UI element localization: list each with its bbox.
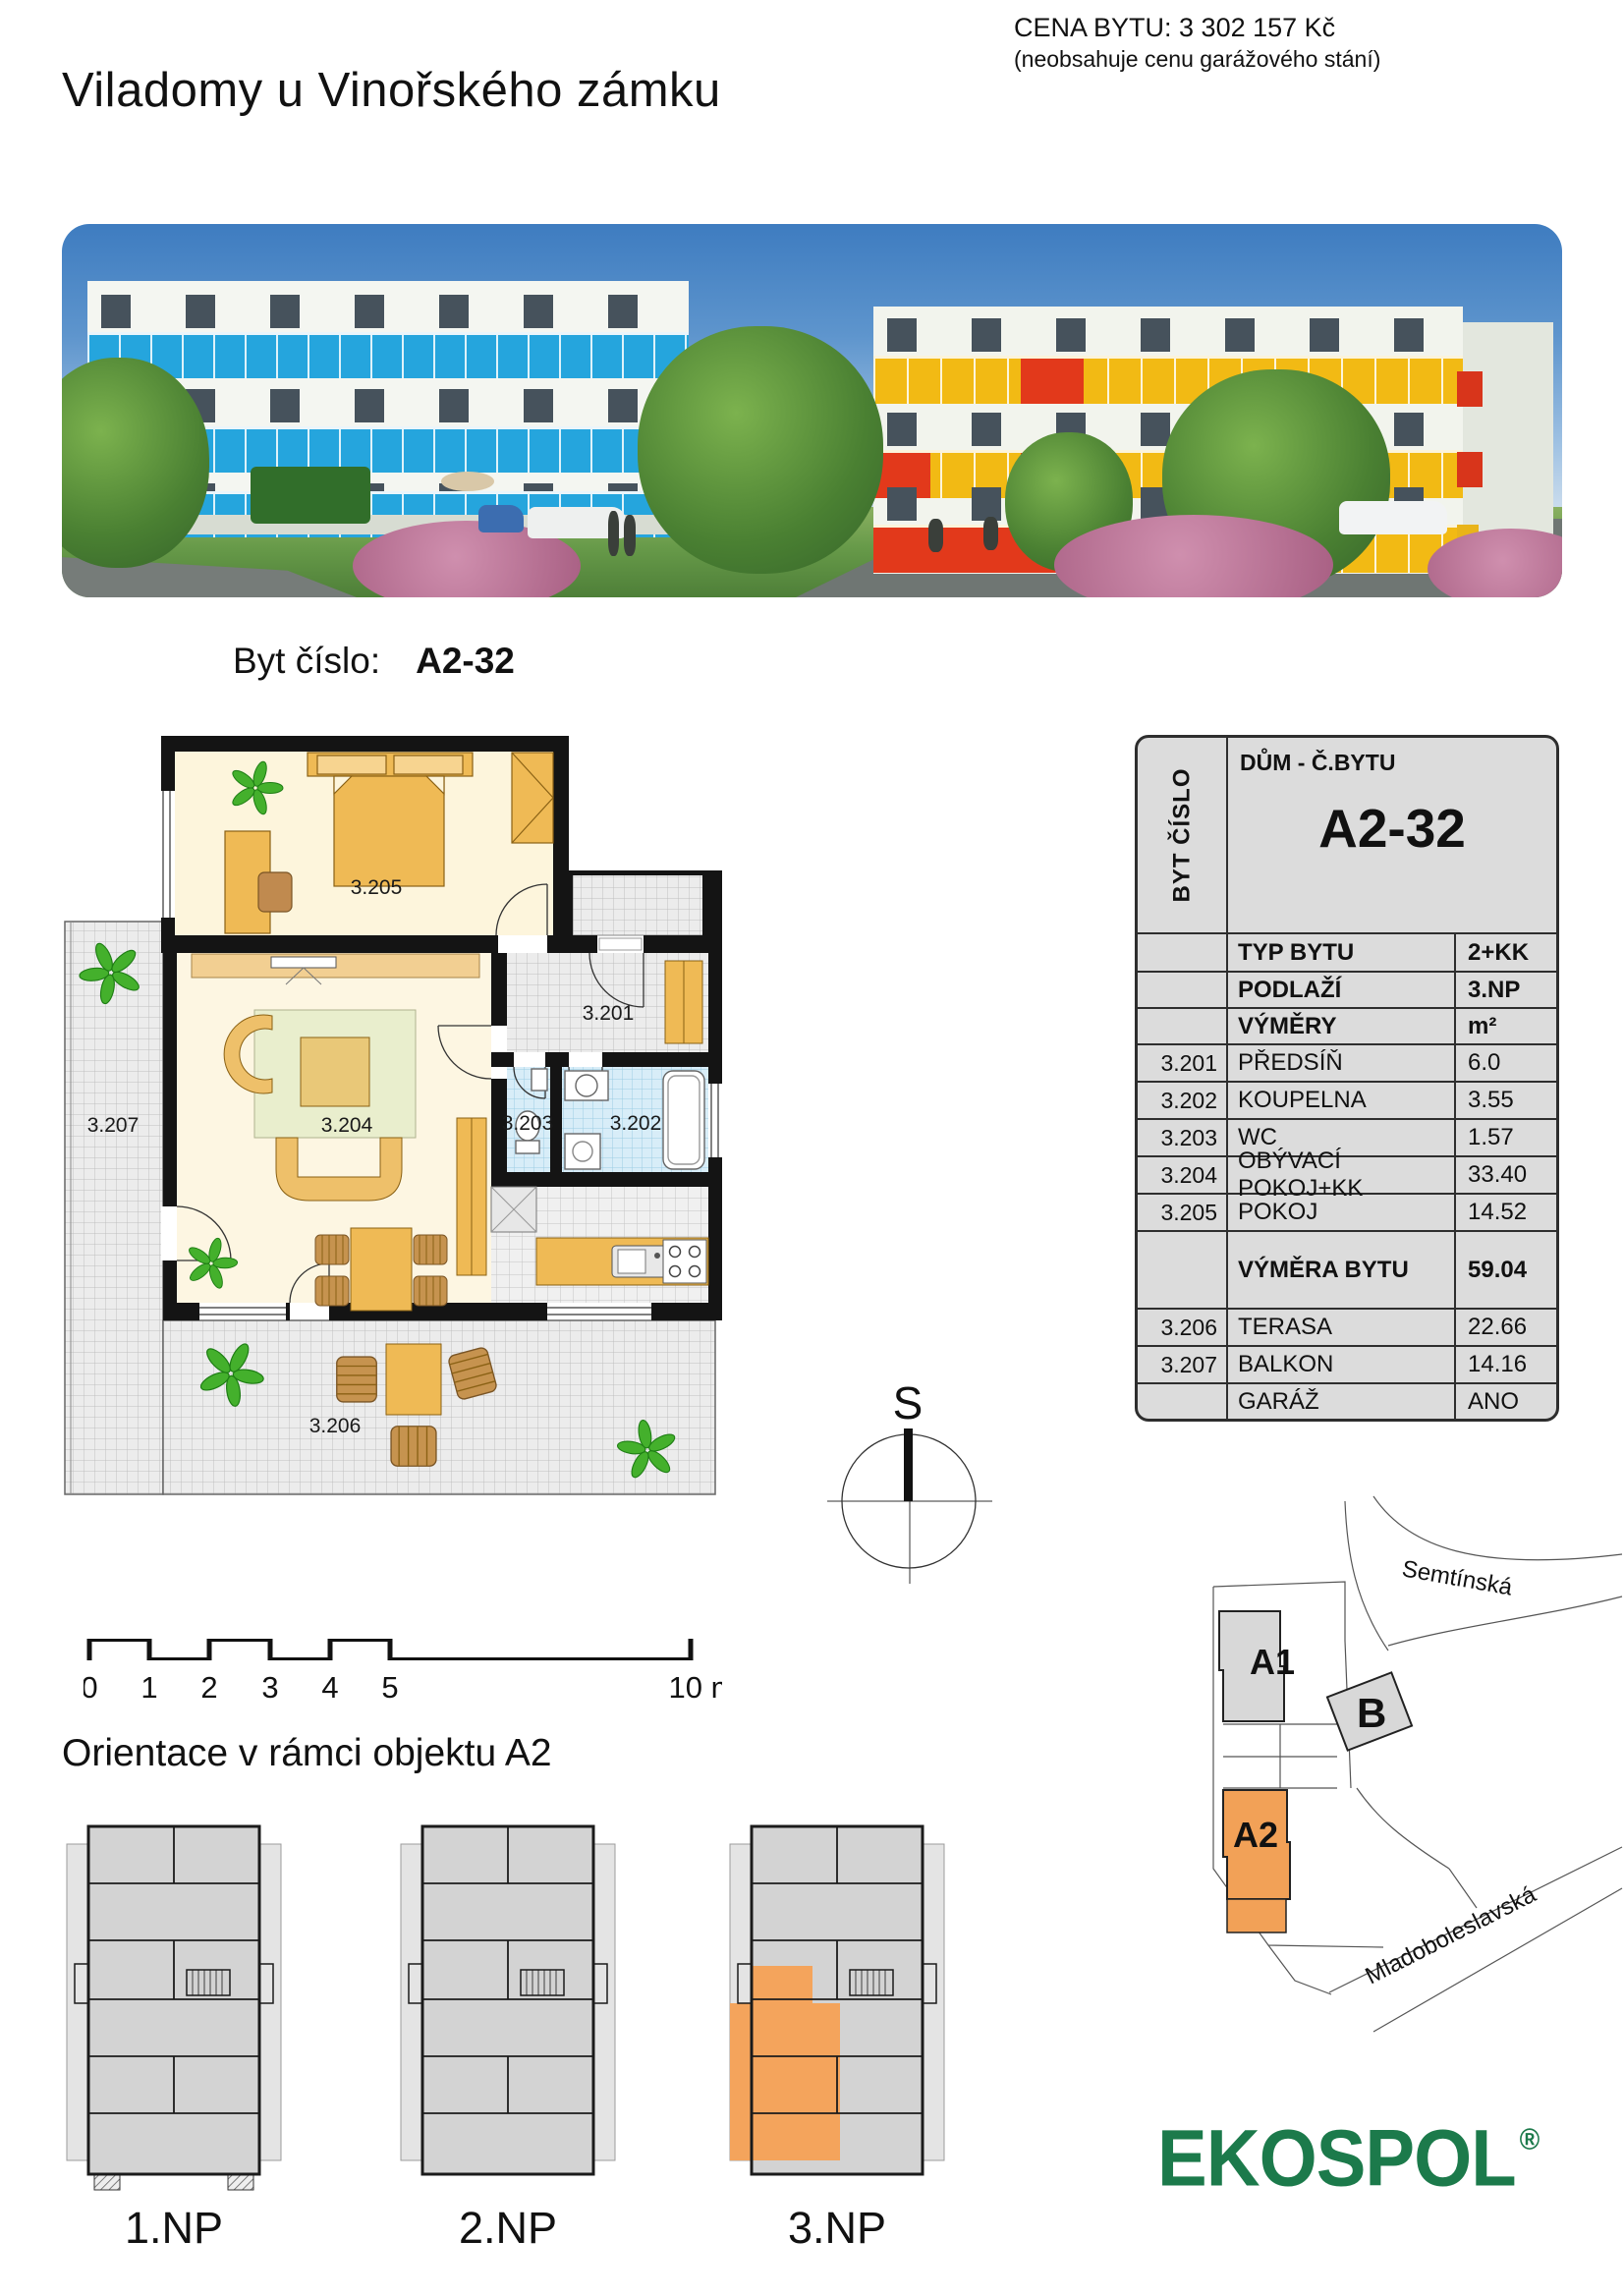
orientation-heading: Orientace v rámci objektu A2 <box>62 1732 552 1775</box>
cell-num <box>1138 1009 1228 1043</box>
room-label-3203: 3.203 <box>502 1112 554 1135</box>
cell-value: 3.55 <box>1456 1083 1556 1118</box>
side-red-balcony <box>1457 371 1483 407</box>
cell-num <box>1138 934 1228 971</box>
building-a2-lower <box>1227 1899 1286 1932</box>
page-title: Viladomy u Vinořského zámku <box>62 63 721 118</box>
building-rendering <box>62 224 1562 597</box>
car-white <box>1339 501 1447 534</box>
room-label-3206: 3.206 <box>309 1415 362 1437</box>
blue-balcony-band <box>87 332 689 378</box>
table-row: 3.202 KOUPELNA 3.55 <box>1138 1081 1556 1118</box>
miniplan-2np <box>395 1820 621 2199</box>
floor-label-1np: 1.NP <box>61 2203 287 2254</box>
cell-num: 3.202 <box>1138 1083 1228 1118</box>
table-header-row: BYT ČÍSLO DŮM - Č.BYTU A2-32 <box>1138 738 1556 932</box>
north-label: S <box>893 1377 924 1428</box>
table-row: VÝMĚRY m² <box>1138 1007 1556 1043</box>
byt-cislo-value: A2-32 <box>416 641 515 681</box>
cell-num <box>1138 973 1228 1007</box>
yellow-balcony-band <box>873 356 1463 404</box>
cell-label: BALKON <box>1228 1347 1456 1382</box>
miniplan-1np <box>61 1820 287 2199</box>
cell-label: TYP BYTU <box>1228 934 1456 971</box>
price-note: (neobsahuje cenu garážového stání) <box>1014 45 1564 74</box>
dum-value: A2-32 <box>1228 797 1556 860</box>
cell-value: 22.66 <box>1456 1310 1556 1345</box>
window-row <box>887 318 1449 352</box>
umbrella <box>441 472 494 491</box>
cyclist <box>928 519 943 552</box>
side-red-balcony <box>1457 452 1483 487</box>
cell-num <box>1138 1384 1228 1420</box>
cell-num: 3.207 <box>1138 1347 1228 1382</box>
table-row: 3.207 BALKON 14.16 <box>1138 1345 1556 1382</box>
street-label-mladoboleslavska: Mladoboleslavská <box>1361 1880 1540 1989</box>
scale-tick-5: 5 <box>381 1670 398 1705</box>
cell-label: PODLAŽÍ <box>1228 973 1456 1007</box>
cyclist <box>983 517 998 550</box>
cell-value: 1.57 <box>1456 1120 1556 1155</box>
cell-value: 3.NP <box>1456 973 1556 1007</box>
floor-label-2np: 2.NP <box>395 2203 621 2254</box>
table-row: 3.206 TERASA 22.66 <box>1138 1308 1556 1345</box>
cell-label: TERASA <box>1228 1310 1456 1345</box>
table-header-cell: DŮM - Č.BYTU A2-32 <box>1228 738 1556 932</box>
side-label: BYT ČÍSLO <box>1168 767 1196 902</box>
garage-ramp <box>228 2174 253 2190</box>
apartment-datasheet: CENA BYTU: 3 302 157 Kč (neobsahuje cenu… <box>0 0 1624 2296</box>
cell-value: 6.0 <box>1456 1045 1556 1081</box>
cell-num: 3.206 <box>1138 1310 1228 1345</box>
byt-cislo-line: Byt číslo:A2-32 <box>233 641 515 682</box>
building-label-b: B <box>1357 1690 1386 1736</box>
room-label-3202: 3.202 <box>610 1112 662 1135</box>
cell-value: 33.40 <box>1456 1157 1556 1193</box>
cell-value: m² <box>1456 1009 1556 1043</box>
building-label-a2: A2 <box>1233 1815 1278 1855</box>
price-block: CENA BYTU: 3 302 157 Kč (neobsahuje cenu… <box>1014 12 1564 74</box>
compass: S <box>825 1375 1002 1592</box>
ekospol-logo-text: EKOSPOL <box>1157 2113 1516 2204</box>
info-table: BYT ČÍSLO DŮM - Č.BYTU A2-32 TYP BYTU 2+… <box>1135 735 1559 1422</box>
room-label-3201: 3.201 <box>583 1002 635 1025</box>
cell-label: VÝMĚRY <box>1228 1009 1456 1043</box>
cell-value: ANO <box>1456 1384 1556 1420</box>
cell-label: OBÝVACÍ POKOJ+KK <box>1228 1157 1456 1193</box>
street-label-semtinska: Semtínská <box>1400 1555 1515 1600</box>
site-map: A1 B A2 Semtínská Mladoboleslavská <box>1152 1493 1624 2053</box>
cell-num: 3.203 <box>1138 1120 1228 1155</box>
floor-label-3np: 3.NP <box>724 2203 950 2254</box>
cell-label: KOUPELNA <box>1228 1083 1456 1118</box>
scale-tick-1: 1 <box>140 1670 157 1705</box>
cell-value: 2+KK <box>1456 934 1556 971</box>
person <box>608 511 619 556</box>
hedge <box>251 467 370 524</box>
room-label-3207: 3.207 <box>87 1114 140 1137</box>
cell-num: 3.204 <box>1138 1157 1228 1193</box>
cell-value: 14.16 <box>1456 1347 1556 1382</box>
garage-ramp <box>94 2174 120 2190</box>
miniplan-3np <box>724 1820 950 2199</box>
balcony-area <box>65 922 163 1494</box>
compass-needle <box>904 1428 913 1501</box>
cell-num <box>1138 1232 1228 1308</box>
scale-bar-marks <box>87 1639 694 1660</box>
scale-tick-0: 0 <box>84 1670 98 1705</box>
table-row: 3.204 OBÝVACÍ POKOJ+KK 33.40 <box>1138 1155 1556 1193</box>
table-row: TYP BYTU 2+KK <box>1138 932 1556 971</box>
ekospol-logo: EKOSPOL® <box>1157 2112 1539 2205</box>
cell-label: POKOJ <box>1228 1195 1456 1230</box>
scale-end-label: 10 m <box>669 1670 722 1705</box>
room-label-3204: 3.204 <box>321 1114 373 1137</box>
scale-tick-2: 2 <box>200 1670 217 1705</box>
table-row: 3.205 POKOJ 14.52 <box>1138 1193 1556 1230</box>
cell-label: VÝMĚRA BYTU <box>1228 1232 1456 1308</box>
table-row: GARÁŽ ANO <box>1138 1382 1556 1420</box>
vestibule-area <box>573 874 708 935</box>
table-row: PODLAŽÍ 3.NP <box>1138 971 1556 1007</box>
dum-label: DŮM - Č.BYTU <box>1240 750 1395 776</box>
cell-num: 3.201 <box>1138 1045 1228 1081</box>
table-row: 3.201 PŘEDSÍŇ 6.0 <box>1138 1043 1556 1081</box>
building-label-a1: A1 <box>1250 1642 1295 1682</box>
window-row <box>101 295 675 328</box>
table-total-row: VÝMĚRA BYTU 59.04 <box>1138 1230 1556 1308</box>
cell-label: PŘEDSÍŇ <box>1228 1045 1456 1081</box>
tree <box>638 326 883 574</box>
car-blue <box>478 505 524 532</box>
scale-tick-4: 4 <box>321 1670 338 1705</box>
cell-value: 59.04 <box>1456 1232 1556 1308</box>
scale-bar: 0 1 2 3 4 5 10 m <box>84 1621 722 1705</box>
cell-num: 3.205 <box>1138 1195 1228 1230</box>
person <box>624 515 636 556</box>
cell-label: GARÁŽ <box>1228 1384 1456 1420</box>
highlighted-unit <box>730 2003 840 2160</box>
scale-tick-3: 3 <box>261 1670 278 1705</box>
price-label: CENA BYTU: 3 302 157 Kč <box>1014 12 1564 45</box>
cell-value: 14.52 <box>1456 1195 1556 1230</box>
table-side-cell: BYT ČÍSLO <box>1138 738 1228 932</box>
floorplan: 3.205 3.201 3.203 3.202 3.204 3.207 3.20… <box>62 725 730 1506</box>
byt-cislo-label: Byt číslo: <box>233 641 380 681</box>
room-label-3205: 3.205 <box>351 876 403 899</box>
registered-mark-icon: ® <box>1520 2123 1540 2156</box>
red-balcony-segment <box>1021 359 1084 404</box>
highlighted-unit <box>752 1966 812 2003</box>
